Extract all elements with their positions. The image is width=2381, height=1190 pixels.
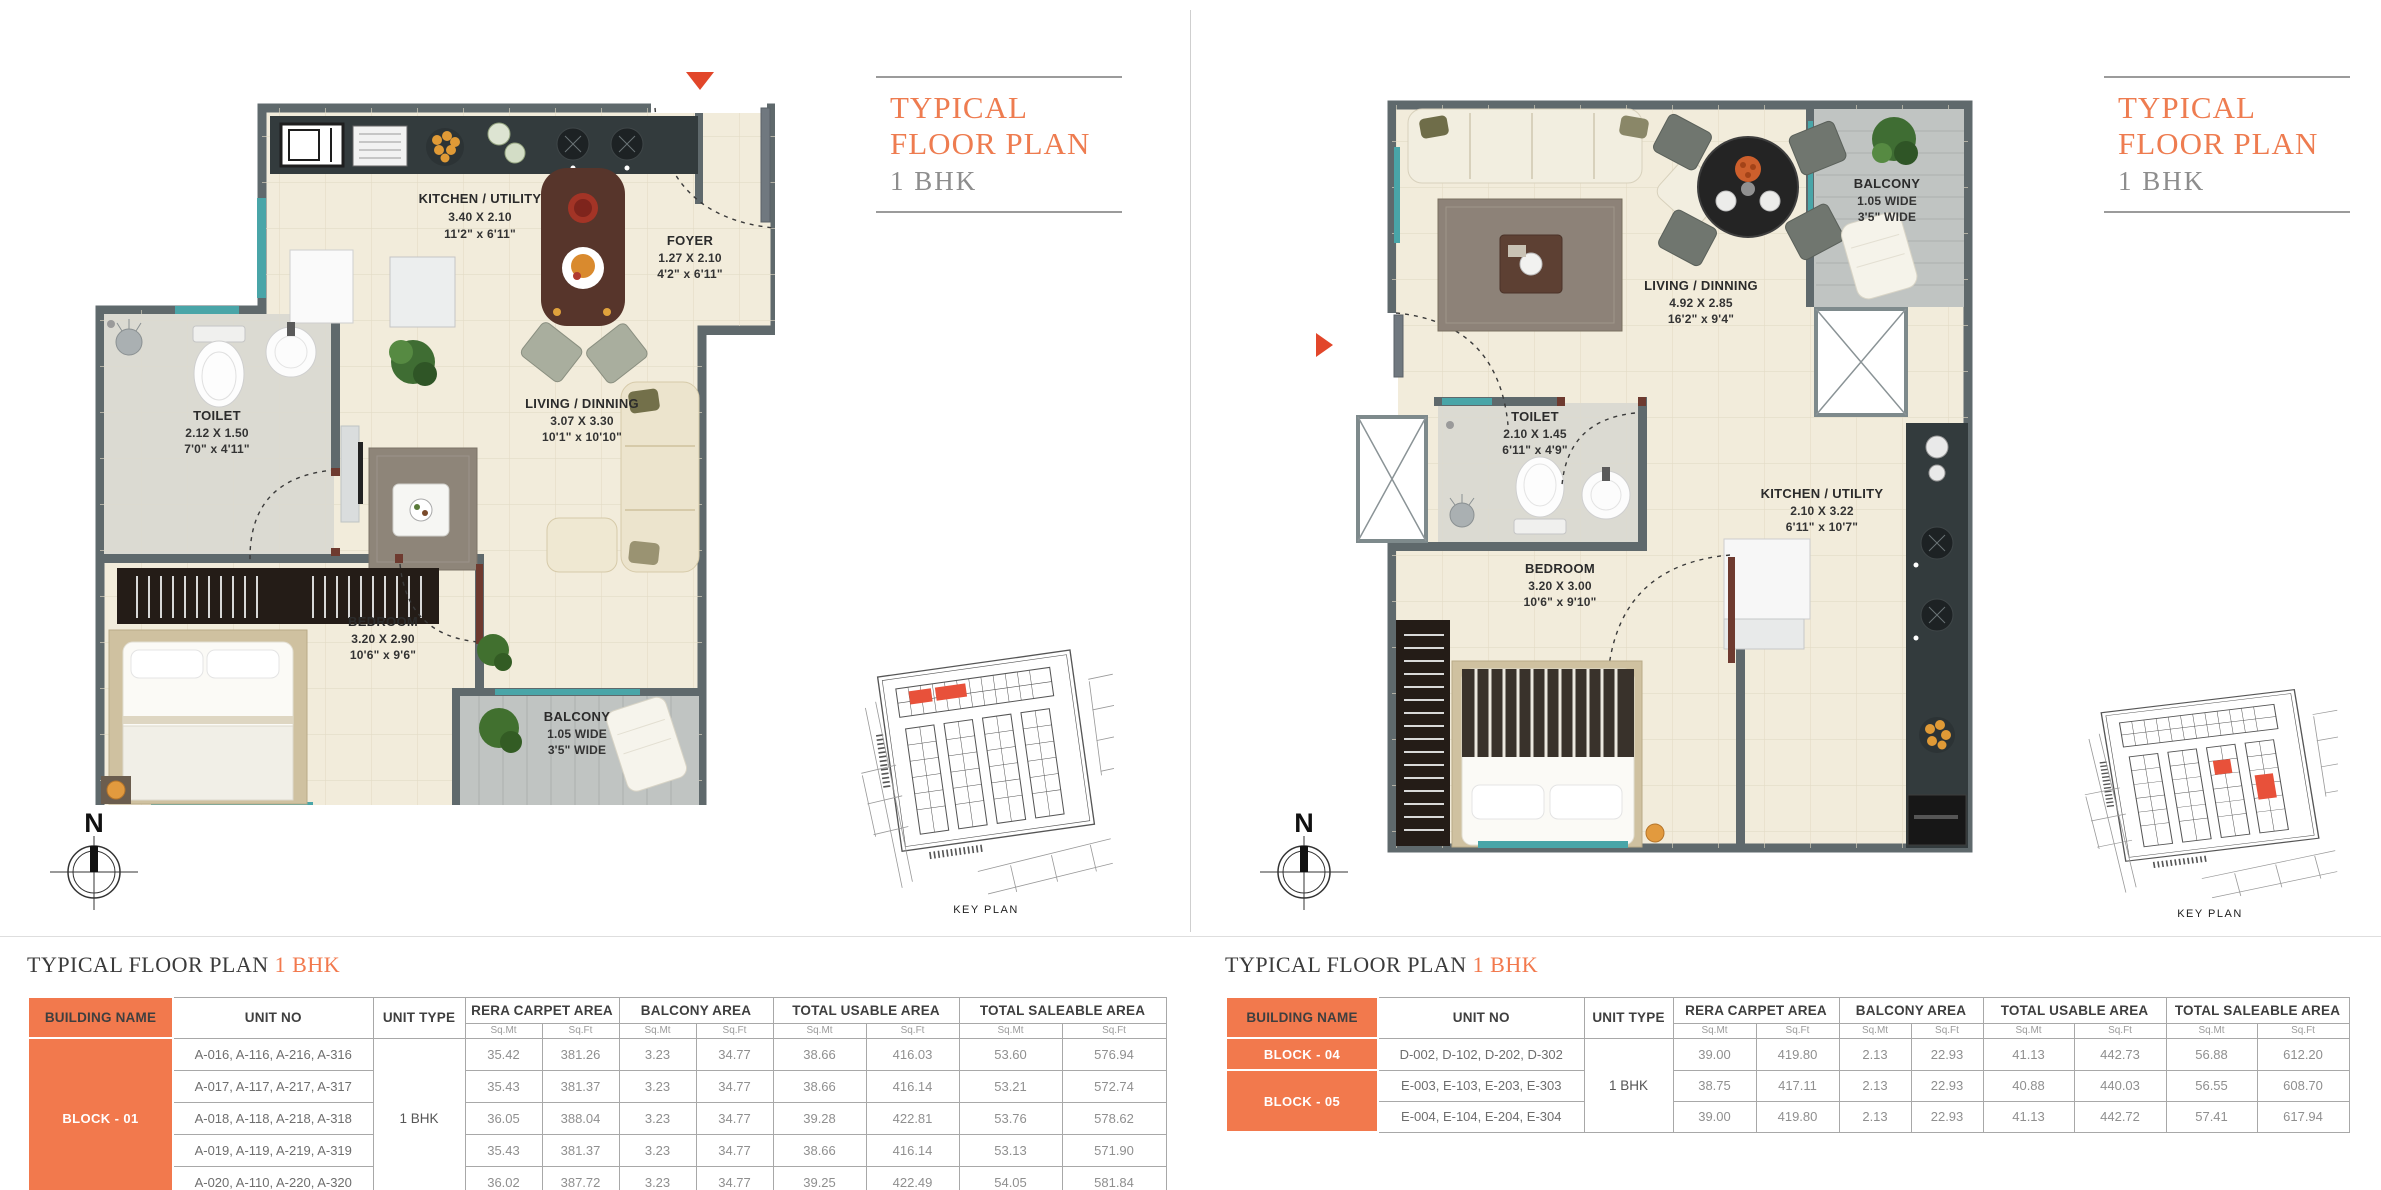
room-dim-living-m: 4.92 X 2.85 (1669, 296, 1733, 310)
value-cell: 387.72 (542, 1166, 619, 1190)
value-cell: 56.88 (2166, 1038, 2257, 1070)
unit-type-value: 1 BHK (373, 1038, 465, 1190)
value-cell: 576.94 (1062, 1038, 1166, 1070)
value-cell: 22.93 (1911, 1038, 1983, 1070)
utility-niche (1816, 309, 1906, 415)
spec-section-left: TYPICAL FLOOR PLAN 1 BHK BUILDING NAME U… (27, 952, 1165, 1190)
value-cell: 3.23 (619, 1070, 696, 1102)
value-cell: 34.77 (696, 1038, 773, 1070)
sub-sqmt: Sq.Mt (1673, 1023, 1756, 1038)
table-title-prefix: TYPICAL FLOOR PLAN (1225, 952, 1467, 977)
key-plan-right: KEY PLAN (2080, 664, 2340, 920)
compass-north-label: N (1294, 808, 1314, 838)
value-cell: 416.03 (866, 1038, 959, 1070)
value-cell: 35.42 (465, 1038, 542, 1070)
table-row: BLOCK - 04 D-002, D-102, D-202, D-302 1 … (1226, 1038, 2349, 1070)
table-row: A-018, A-118, A-218, A-318 36.05 388.04 … (28, 1102, 1166, 1134)
table-title: TYPICAL FLOOR PLAN 1 BHK (27, 952, 1165, 978)
value-cell: 36.02 (465, 1166, 542, 1190)
unit-numbers: A-020, A-110, A-220, A-320 (173, 1166, 373, 1190)
title-block-right: TYPICAL FLOOR PLAN 1 BHK (2104, 76, 2350, 213)
compass-north-label: N (84, 808, 104, 838)
value-cell: 3.23 (619, 1038, 696, 1070)
unit-type-value: 1 BHK (1584, 1038, 1673, 1132)
value-cell: 3.23 (619, 1102, 696, 1134)
col-building-name: BUILDING NAME (1226, 997, 1378, 1038)
sub-sqmt: Sq.Mt (1839, 1023, 1911, 1038)
sub-sqft: Sq.Ft (1756, 1023, 1839, 1038)
value-cell: 419.80 (1756, 1038, 1839, 1070)
bedside-lamp (1646, 824, 1664, 842)
section-divider-vertical (1190, 10, 1191, 932)
room-label-living: LIVING / DINNING (525, 396, 639, 411)
room-dim-toilet-ft: 6'11" x 4'9" (1502, 443, 1568, 457)
room-dim-toilet-m: 2.12 X 1.50 (185, 426, 249, 440)
room-dim-bedroom-m: 3.20 X 3.00 (1528, 579, 1592, 593)
value-cell: 36.05 (465, 1102, 542, 1134)
value-cell: 53.60 (959, 1038, 1062, 1070)
value-cell: 34.77 (696, 1102, 773, 1134)
value-cell: 22.93 (1911, 1101, 1983, 1132)
value-cell: 422.81 (866, 1102, 959, 1134)
room-dim-kitchen-ft: 6'11" x 10'7" (1786, 520, 1858, 534)
table-title: TYPICAL FLOOR PLAN 1 BHK (1225, 952, 2348, 978)
bedroom-door-leaf (476, 564, 483, 644)
block-name: BLOCK - 01 (28, 1038, 173, 1190)
value-cell: 34.77 (696, 1166, 773, 1190)
spec-table-left: BUILDING NAME UNIT NO UNIT TYPE RERA CAR… (27, 996, 1167, 1190)
col-balcony-area: BALCONY AREA (1839, 997, 1983, 1023)
entry-door-leaf (1394, 315, 1403, 377)
island-counter (541, 168, 625, 326)
floor-plan-left: KITCHEN / UTILITY 3.40 X 2.10 11'2" x 6'… (95, 90, 775, 805)
value-cell: 417.11 (1756, 1070, 1839, 1101)
value-cell: 40.88 (1983, 1070, 2074, 1101)
title-line3: 1 BHK (890, 165, 1122, 197)
sub-sqmt: Sq.Mt (1983, 1023, 2074, 1038)
sub-sqmt: Sq.Mt (959, 1023, 1062, 1038)
sub-sqft: Sq.Ft (2257, 1023, 2349, 1038)
value-cell: 381.26 (542, 1038, 619, 1070)
value-cell: 3.23 (619, 1166, 696, 1190)
dining-table (1698, 137, 1798, 237)
room-dim-kitchen-ft: 11'2" x 6'11" (444, 227, 516, 241)
value-cell: 38.66 (773, 1134, 866, 1166)
value-cell: 388.04 (542, 1102, 619, 1134)
unit-numbers: A-019, A-119, A-219, A-319 (173, 1134, 373, 1166)
value-cell: 572.74 (1062, 1070, 1166, 1102)
brochure-page: KITCHEN / UTILITY 3.40 X 2.10 11'2" x 6'… (0, 0, 2381, 1190)
room-dim-balcony-m: 1.05 WIDE (1857, 194, 1917, 208)
value-cell: 612.20 (2257, 1038, 2349, 1070)
fridge (290, 250, 353, 323)
value-cell: 53.21 (959, 1070, 1062, 1102)
room-dim-foyer-m: 1.27 X 2.10 (658, 251, 722, 265)
value-cell: 2.13 (1839, 1101, 1911, 1132)
room-dim-living-ft: 16'2" x 9'4" (1668, 312, 1734, 326)
col-unit-type: UNIT TYPE (1584, 997, 1673, 1038)
col-rera-carpet: RERA CARPET AREA (1673, 997, 1839, 1023)
col-unit-no: UNIT NO (1378, 997, 1584, 1038)
value-cell: 381.37 (542, 1134, 619, 1166)
spec-table-right: BUILDING NAME UNIT NO UNIT TYPE RERA CAR… (1225, 996, 2350, 1133)
value-cell: 442.72 (2074, 1101, 2166, 1132)
room-label-kitchen: KITCHEN / UTILITY (1761, 486, 1884, 501)
table-row: BLOCK - 05 E-003, E-103, E-203, E-303 38… (1226, 1070, 2349, 1101)
value-cell: 35.43 (465, 1134, 542, 1166)
value-cell: 53.13 (959, 1134, 1062, 1166)
title-line1: TYPICAL (2118, 90, 2350, 126)
value-cell: 2.13 (1839, 1038, 1911, 1070)
value-cell: 56.55 (2166, 1070, 2257, 1101)
spec-section-right: TYPICAL FLOOR PLAN 1 BHK BUILDING NAME U… (1225, 952, 2348, 1133)
title-block-left: TYPICAL FLOOR PLAN 1 BHK (876, 76, 1122, 213)
unit-numbers: D-002, D-102, D-202, D-302 (1378, 1038, 1584, 1070)
sub-sqmt: Sq.Mt (2166, 1023, 2257, 1038)
value-cell: 22.93 (1911, 1070, 1983, 1101)
value-cell: 54.05 (959, 1166, 1062, 1190)
sub-sqft: Sq.Ft (542, 1023, 619, 1038)
value-cell: 34.77 (696, 1070, 773, 1102)
sub-sqmt: Sq.Mt (773, 1023, 866, 1038)
room-dim-toilet-ft: 7'0" x 4'11" (184, 442, 250, 456)
key-plan-map (856, 620, 1114, 896)
col-unit-no: UNIT NO (173, 997, 373, 1038)
bed (1452, 661, 1642, 847)
unit-numbers: E-003, E-103, E-203, E-303 (1378, 1070, 1584, 1101)
value-cell: 578.62 (1062, 1102, 1166, 1134)
key-plan-caption: KEY PLAN (856, 904, 1116, 916)
col-total-saleable: TOTAL SALEABLE AREA (2166, 997, 2349, 1023)
table-row: BLOCK - 01 A-016, A-116, A-216, A-316 1 … (28, 1038, 1166, 1070)
room-label-toilet: TOILET (1511, 409, 1559, 424)
table-row: E-004, E-104, E-204, E-304 39.00 419.80 … (1226, 1101, 2349, 1132)
value-cell: 571.90 (1062, 1134, 1166, 1166)
sub-sqmt: Sq.Mt (619, 1023, 696, 1038)
living-rug (1438, 199, 1622, 331)
fridge (1724, 539, 1810, 619)
cabinet (1724, 619, 1804, 649)
col-building-name: BUILDING NAME (28, 997, 173, 1038)
value-cell: 617.94 (2257, 1101, 2349, 1132)
value-cell: 3.23 (619, 1134, 696, 1166)
room-dim-balcony-ft: 3'5" WIDE (548, 743, 606, 757)
kitchen-counter (270, 116, 698, 174)
wardrobe (1396, 620, 1450, 846)
value-cell: 2.13 (1839, 1070, 1911, 1101)
room-dim-bedroom-m: 3.20 X 2.90 (351, 632, 415, 646)
value-cell: 608.70 (2257, 1070, 2349, 1101)
room-dim-bedroom-ft: 10'6" x 9'10" (1523, 595, 1596, 609)
col-rera-carpet: RERA CARPET AREA (465, 997, 619, 1023)
table-title-accent: 1 BHK (275, 952, 340, 977)
entrance-marker-icon (686, 72, 714, 90)
room-label-foyer: FOYER (667, 233, 714, 248)
value-cell: 381.37 (542, 1070, 619, 1102)
table-row: A-019, A-119, A-219, A-319 35.43 381.37 … (28, 1134, 1166, 1166)
bedside-lamp (107, 781, 125, 799)
room-dim-balcony-ft: 3'5" WIDE (1858, 210, 1916, 224)
kitchen-counter (1906, 423, 1968, 848)
value-cell: 57.41 (2166, 1101, 2257, 1132)
cabinet (390, 257, 455, 327)
room-label-balcony: BALCONY (544, 709, 610, 724)
col-total-usable: TOTAL USABLE AREA (1983, 997, 2166, 1023)
bedroom-door-leaf (1728, 557, 1735, 663)
room-dim-bedroom-ft: 10'6" x 9'6" (350, 648, 416, 662)
entry-door-leaf (761, 108, 770, 222)
value-cell: 35.43 (465, 1070, 542, 1102)
bed (109, 630, 307, 804)
sofa (1408, 109, 1650, 183)
unit-numbers: A-017, A-117, A-217, A-317 (173, 1070, 373, 1102)
sub-sqft: Sq.Ft (696, 1023, 773, 1038)
floor-plan-right: LIVING / DINNING 4.92 X 2.85 16'2" x 9'4… (1350, 95, 1975, 855)
value-cell: 39.00 (1673, 1038, 1756, 1070)
key-plan-caption: KEY PLAN (2080, 908, 2340, 920)
room-dim-living-ft: 10'1" x 10'10" (542, 430, 622, 444)
col-total-saleable: TOTAL SALEABLE AREA (959, 997, 1166, 1023)
value-cell: 41.13 (1983, 1101, 2074, 1132)
table-row: A-017, A-117, A-217, A-317 35.43 381.37 … (28, 1070, 1166, 1102)
unit-numbers: A-018, A-118, A-218, A-318 (173, 1102, 373, 1134)
compass-icon: N (48, 806, 140, 914)
title-line1: TYPICAL (890, 90, 1122, 126)
value-cell: 39.00 (1673, 1101, 1756, 1132)
room-label-toilet: TOILET (193, 408, 241, 423)
room-label-balcony: BALCONY (1854, 176, 1920, 191)
shaft-niche (1358, 417, 1426, 541)
title-line3: 1 BHK (2118, 165, 2350, 197)
living-rug (369, 448, 477, 570)
value-cell: 39.28 (773, 1102, 866, 1134)
col-unit-type: UNIT TYPE (373, 997, 465, 1038)
col-balcony-area: BALCONY AREA (619, 997, 773, 1023)
value-cell: 581.84 (1062, 1166, 1166, 1190)
compass-icon: N (1258, 806, 1350, 914)
room-dim-foyer-ft: 4'2" x 6'11" (657, 267, 723, 281)
sub-sqft: Sq.Ft (2074, 1023, 2166, 1038)
sub-sqft: Sq.Ft (866, 1023, 959, 1038)
room-dim-balcony-m: 1.05 WIDE (547, 727, 607, 741)
value-cell: 442.73 (2074, 1038, 2166, 1070)
room-label-bedroom: BEDROOM (348, 614, 418, 629)
entrance-marker-icon (1316, 333, 1333, 357)
title-line2: FLOOR PLAN (2118, 126, 2350, 162)
room-label-kitchen: KITCHEN / UTILITY (419, 191, 542, 206)
title-line2: FLOOR PLAN (890, 126, 1122, 162)
sub-sqft: Sq.Ft (1911, 1023, 1983, 1038)
value-cell: 422.49 (866, 1166, 959, 1190)
value-cell: 53.76 (959, 1102, 1062, 1134)
room-dim-living-m: 3.07 X 3.30 (550, 414, 614, 428)
unit-numbers: A-016, A-116, A-216, A-316 (173, 1038, 373, 1070)
room-dim-toilet-m: 2.10 X 1.45 (1503, 427, 1567, 441)
section-divider-horizontal (0, 936, 2381, 937)
sub-sqft: Sq.Ft (1062, 1023, 1166, 1038)
unit-numbers: E-004, E-104, E-204, E-304 (1378, 1101, 1584, 1132)
value-cell: 39.25 (773, 1166, 866, 1190)
room-label-living: LIVING / DINNING (1644, 278, 1758, 293)
key-plan-left: KEY PLAN (856, 620, 1116, 916)
table-row: A-020, A-110, A-220, A-320 36.02 387.72 … (28, 1166, 1166, 1190)
table-title-prefix: TYPICAL FLOOR PLAN (27, 952, 269, 977)
keyplan-highlight (2213, 754, 2277, 804)
value-cell: 416.14 (866, 1134, 959, 1166)
value-cell: 419.80 (1756, 1101, 1839, 1132)
value-cell: 41.13 (1983, 1038, 2074, 1070)
value-cell: 38.66 (773, 1038, 866, 1070)
value-cell: 38.66 (773, 1070, 866, 1102)
table-title-accent: 1 BHK (1473, 952, 1538, 977)
value-cell: 38.75 (1673, 1070, 1756, 1101)
keyplan-highlight (909, 683, 968, 704)
value-cell: 416.14 (866, 1070, 959, 1102)
block-name: BLOCK - 04 (1226, 1038, 1378, 1070)
block-name: BLOCK - 05 (1226, 1070, 1378, 1132)
key-plan-map (2080, 664, 2338, 900)
sub-sqmt: Sq.Mt (465, 1023, 542, 1038)
room-label-bedroom: BEDROOM (1525, 561, 1595, 576)
value-cell: 440.03 (2074, 1070, 2166, 1101)
room-dim-kitchen-m: 2.10 X 3.22 (1790, 504, 1854, 518)
value-cell: 34.77 (696, 1134, 773, 1166)
room-dim-kitchen-m: 3.40 X 2.10 (448, 210, 512, 224)
col-total-usable: TOTAL USABLE AREA (773, 997, 959, 1023)
